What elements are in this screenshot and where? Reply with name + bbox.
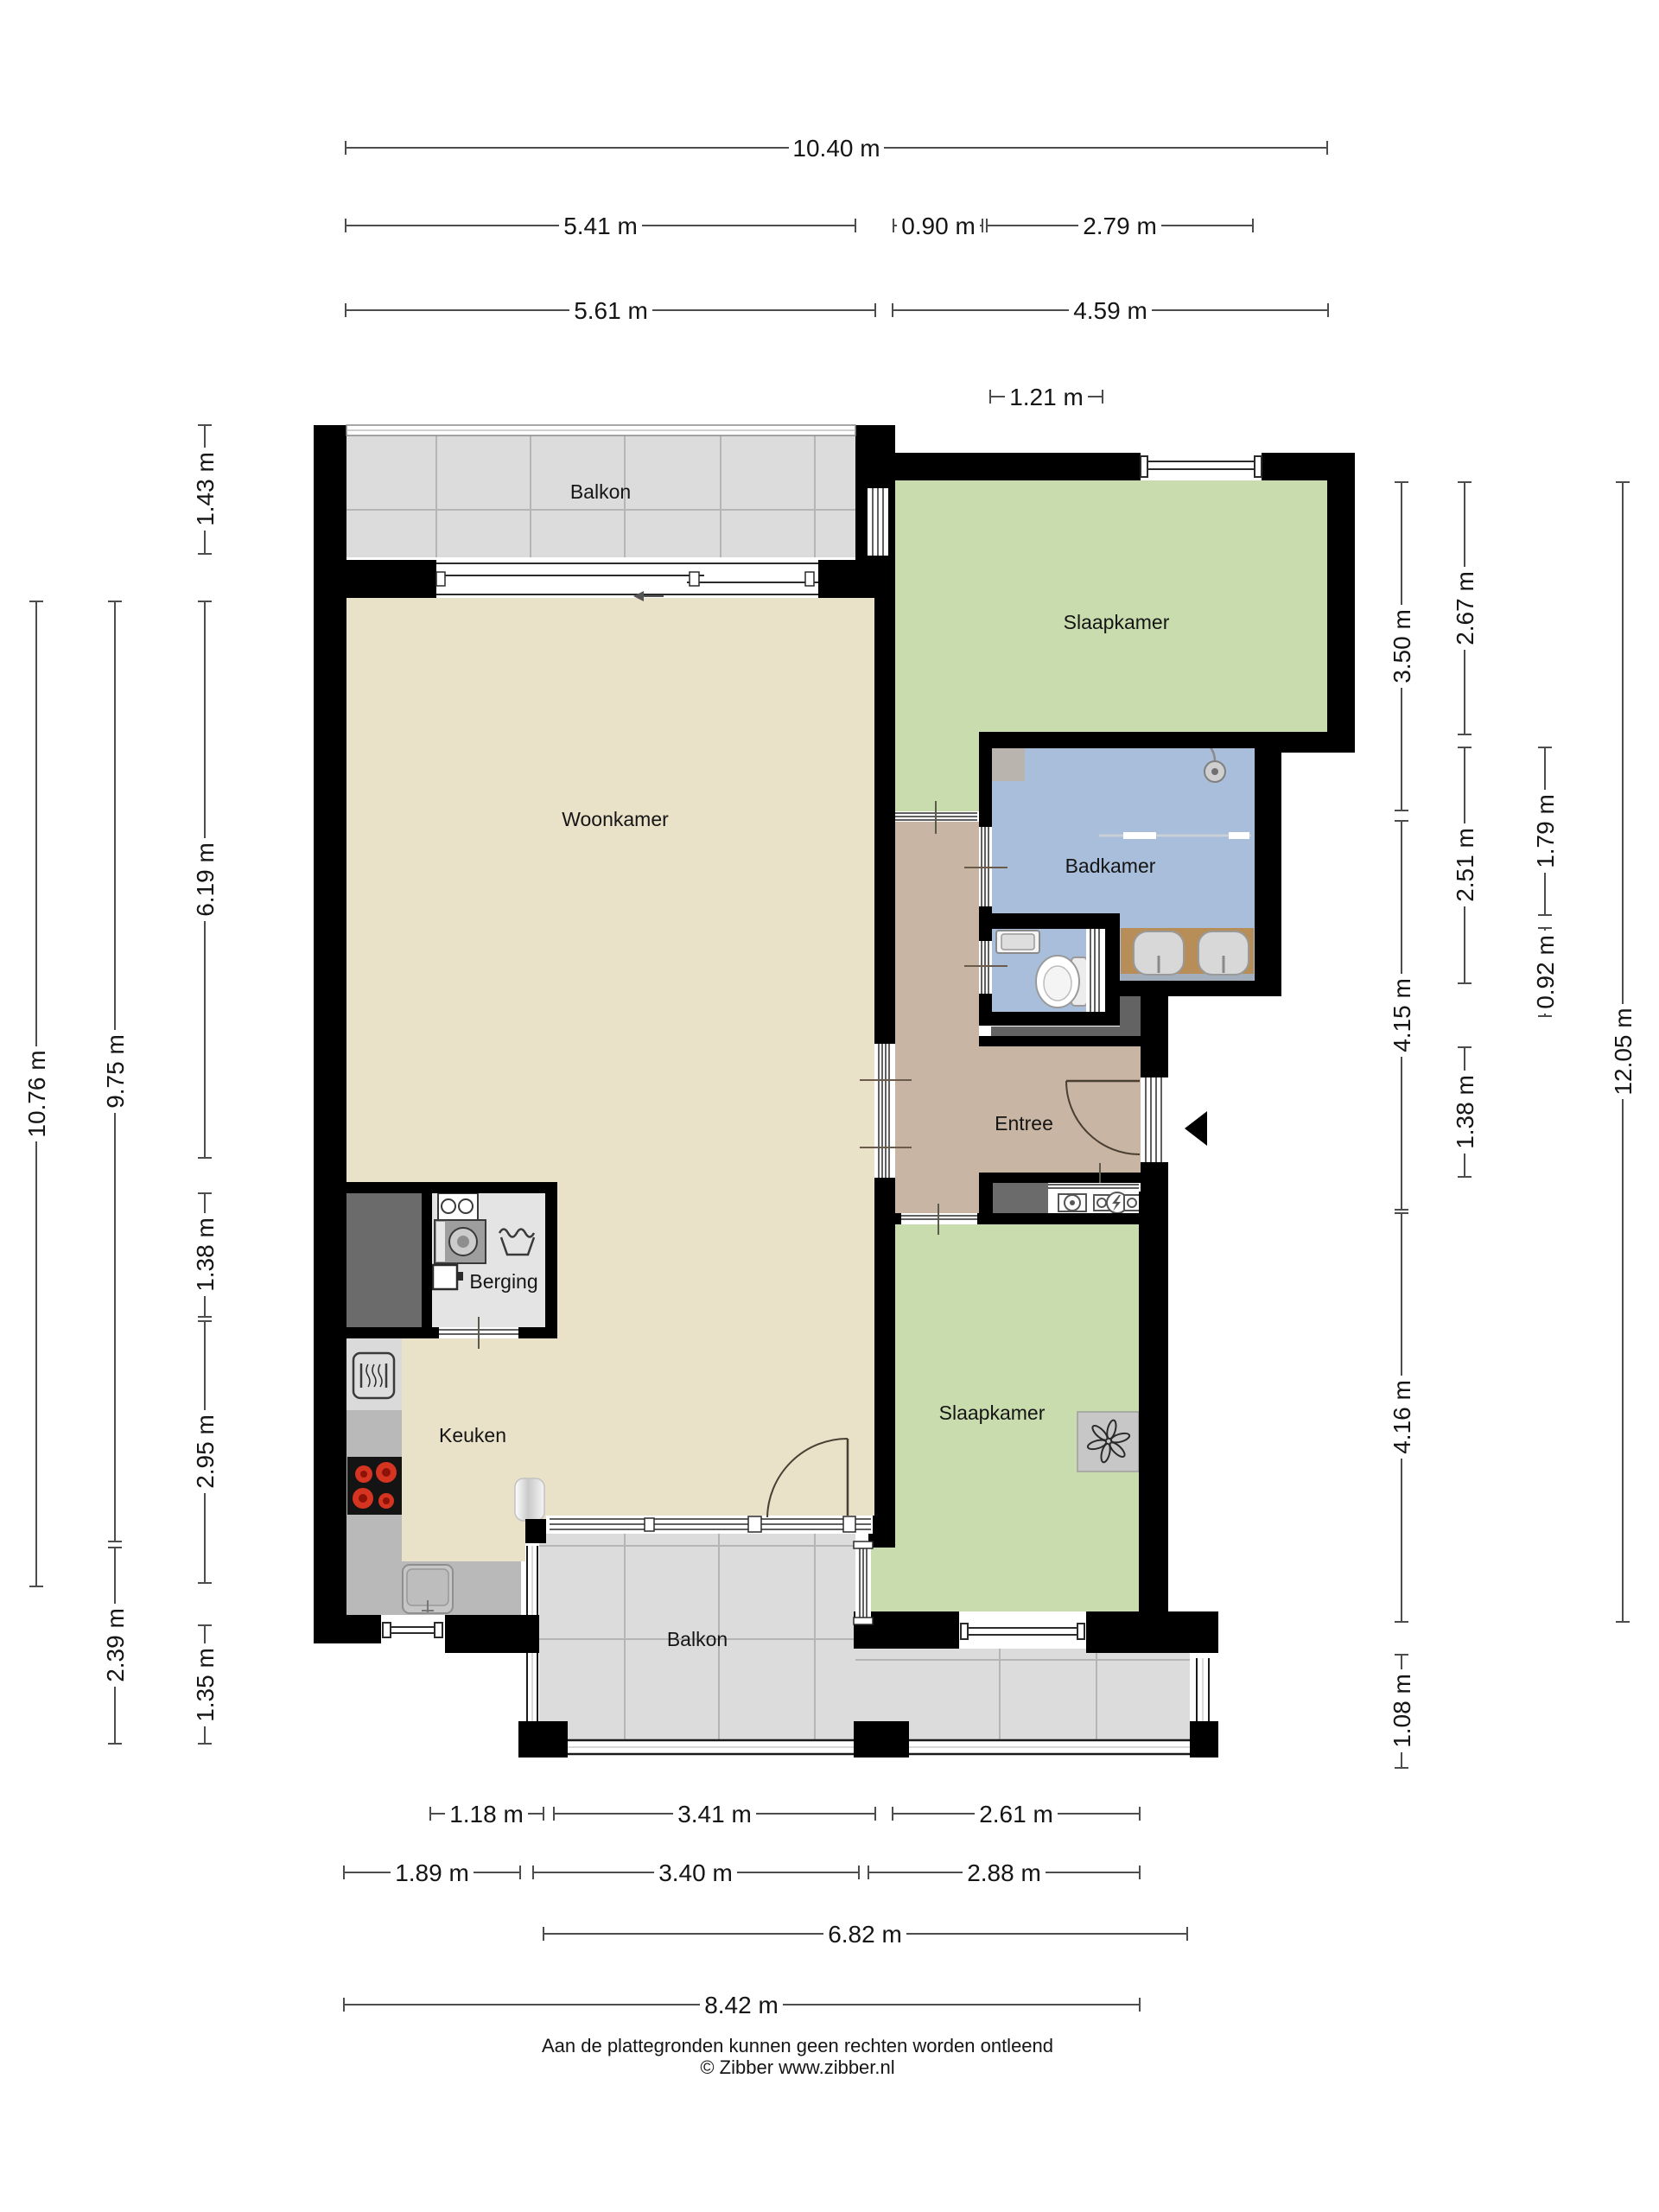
svg-text:10.40 m: 10.40 m <box>792 135 880 162</box>
svg-text:2.67 m: 2.67 m <box>1452 571 1478 645</box>
svg-text:Slaapkamer: Slaapkamer <box>1064 611 1170 633</box>
svg-text:© Zibber www.zibber.nl: © Zibber www.zibber.nl <box>700 2056 894 2078</box>
svg-text:Entree: Entree <box>995 1112 1053 1135</box>
svg-text:5.41 m: 5.41 m <box>563 213 638 239</box>
svg-text:Badkamer: Badkamer <box>1065 855 1156 877</box>
svg-text:Berging: Berging <box>469 1270 537 1293</box>
svg-text:2.79 m: 2.79 m <box>1083 213 1157 239</box>
svg-text:10.76 m: 10.76 m <box>23 1050 50 1137</box>
svg-text:2.51 m: 2.51 m <box>1452 828 1478 902</box>
svg-text:2.88 m: 2.88 m <box>967 1859 1041 1886</box>
svg-text:6.19 m: 6.19 m <box>192 842 219 917</box>
svg-text:2.95 m: 2.95 m <box>192 1414 219 1489</box>
svg-text:1.43 m: 1.43 m <box>192 452 219 526</box>
svg-text:3.40 m: 3.40 m <box>658 1859 733 1886</box>
svg-text:1.21 m: 1.21 m <box>1009 384 1084 410</box>
svg-text:1.35 m: 1.35 m <box>192 1648 219 1722</box>
svg-text:0.90 m: 0.90 m <box>901 213 976 239</box>
svg-text:2.39 m: 2.39 m <box>102 1608 129 1682</box>
svg-text:1.79 m: 1.79 m <box>1532 794 1559 868</box>
svg-text:4.59 m: 4.59 m <box>1073 297 1147 324</box>
svg-text:2.61 m: 2.61 m <box>979 1801 1053 1827</box>
svg-text:4.15 m: 4.15 m <box>1389 978 1415 1052</box>
svg-text:4.16 m: 4.16 m <box>1389 1380 1415 1454</box>
svg-text:5.61 m: 5.61 m <box>574 297 648 324</box>
svg-text:9.75 m: 9.75 m <box>102 1034 129 1109</box>
svg-text:Keuken: Keuken <box>439 1424 506 1446</box>
svg-text:Slaapkamer: Slaapkamer <box>939 1402 1046 1424</box>
svg-text:Balkon: Balkon <box>570 480 631 503</box>
svg-text:Woonkamer: Woonkamer <box>562 808 669 830</box>
svg-text:3.41 m: 3.41 m <box>677 1801 752 1827</box>
svg-text:1.08 m: 1.08 m <box>1389 1674 1415 1748</box>
svg-text:0.92 m: 0.92 m <box>1532 935 1559 1009</box>
svg-text:Balkon: Balkon <box>667 1628 728 1650</box>
svg-text:1.38 m: 1.38 m <box>192 1217 219 1292</box>
svg-text:8.42 m: 8.42 m <box>704 1992 779 2018</box>
svg-text:12.05 m: 12.05 m <box>1610 1007 1637 1095</box>
svg-text:3.50 m: 3.50 m <box>1389 609 1415 683</box>
svg-text:1.89 m: 1.89 m <box>395 1859 469 1886</box>
svg-text:1.38 m: 1.38 m <box>1452 1075 1478 1149</box>
svg-text:1.18 m: 1.18 m <box>449 1801 524 1827</box>
svg-text:6.82 m: 6.82 m <box>828 1921 902 1948</box>
svg-text:Aan de plattegronden kunnen ge: Aan de plattegronden kunnen geen rechten… <box>542 2035 1053 2056</box>
